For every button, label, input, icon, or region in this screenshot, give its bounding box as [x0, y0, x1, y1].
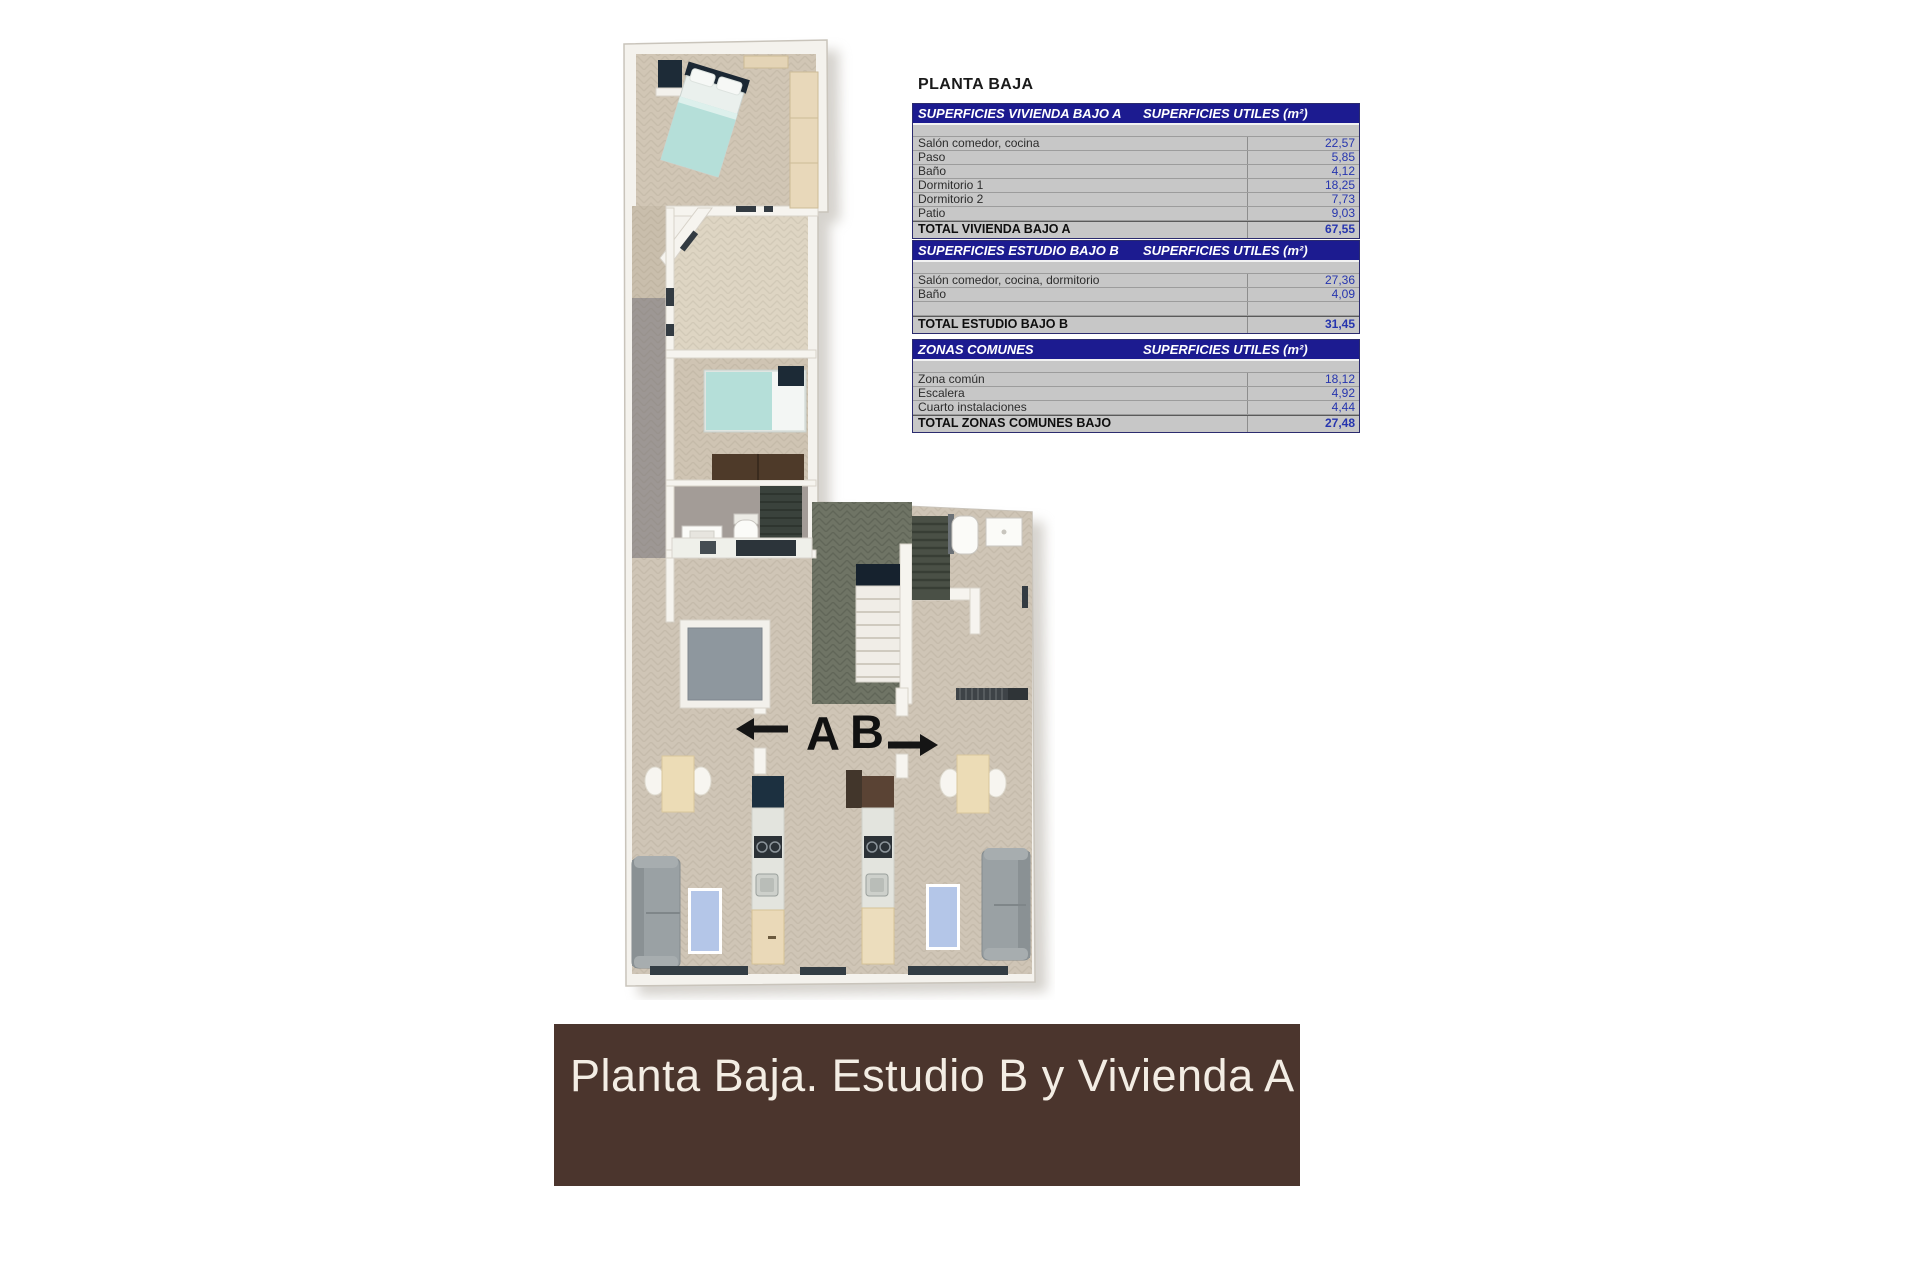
- row-value: 4,09: [1247, 288, 1359, 301]
- shower: [760, 486, 802, 546]
- table-title: ZONAS COMUNES: [918, 342, 1034, 357]
- table-title: SUPERFICIES VIVIENDA BAJO A: [918, 106, 1121, 121]
- caption-banner: Planta Baja. Estudio B y Vivienda A: [554, 1024, 1300, 1186]
- kitchen-island-a: [752, 776, 784, 964]
- row-label: Escalera: [913, 387, 1247, 400]
- page-title: PLANTA BAJA: [918, 76, 1034, 94]
- table-row: Patio 9,03: [913, 207, 1359, 221]
- table-row: Paso 5,85: [913, 151, 1359, 165]
- table-header: SUPERFICIES VIVIENDA BAJO A SUPERFICIES …: [913, 104, 1359, 125]
- table-units-header: SUPERFICIES UTILES (m²): [1143, 342, 1308, 357]
- row-label: Patio: [913, 207, 1247, 220]
- installations-room: [680, 620, 770, 708]
- sofa-a: [632, 856, 680, 968]
- row-value: 18,25: [1247, 179, 1359, 192]
- row-label: Dormitorio 1: [913, 179, 1247, 192]
- single-bed: [704, 366, 806, 432]
- area-table-vivienda-a: SUPERFICIES VIVIENDA BAJO A SUPERFICIES …: [912, 103, 1360, 239]
- table-units-header: SUPERFICIES UTILES (m²): [1143, 106, 1308, 121]
- table-header: ZONAS COMUNES SUPERFICIES UTILES (m²): [913, 340, 1359, 361]
- table-title: SUPERFICIES ESTUDIO BAJO B: [918, 243, 1119, 258]
- total-label: TOTAL VIVIENDA BAJO A: [913, 222, 1247, 238]
- caption-text: Planta Baja. Estudio B y Vivienda A: [570, 1050, 1295, 1102]
- table-units-header: SUPERFICIES UTILES (m²): [1143, 243, 1308, 258]
- page: A B: [0, 0, 1920, 1280]
- total-value: 27,48: [1247, 416, 1359, 432]
- table-header: SUPERFICIES ESTUDIO BAJO B SUPERFICIES U…: [913, 241, 1359, 262]
- kitchen-counter: [672, 538, 812, 558]
- dresser: [712, 454, 804, 480]
- row-label: Baño: [913, 165, 1247, 178]
- row-label: Dormitorio 2: [913, 193, 1247, 206]
- row-label: Baño: [913, 288, 1247, 301]
- row-value: 7,73: [1247, 193, 1359, 206]
- area-table-estudio-b: SUPERFICIES ESTUDIO BAJO B SUPERFICIES U…: [912, 240, 1360, 334]
- rug-b: [926, 884, 960, 950]
- row-label: Salón comedor, cocina: [913, 137, 1247, 150]
- table-row: Baño 4,12: [913, 165, 1359, 179]
- row-value: 4,12: [1247, 165, 1359, 178]
- row-value: 18,12: [1247, 373, 1359, 386]
- radiator: [956, 688, 1028, 700]
- table-row: Dormitorio 2 7,73: [913, 193, 1359, 207]
- toilet-b: [948, 514, 978, 554]
- row-value: 4,44: [1247, 401, 1359, 414]
- staircase: [856, 564, 900, 682]
- total-label: TOTAL ESTUDIO BAJO B: [913, 317, 1247, 333]
- row-value: 5,85: [1247, 151, 1359, 164]
- table-row: Baño 4,09: [913, 288, 1359, 302]
- area-table-zonas-comunes: ZONAS COMUNES SUPERFICIES UTILES (m²) Zo…: [912, 339, 1360, 433]
- total-label: TOTAL ZONAS COMUNES BAJO: [913, 416, 1247, 432]
- table-row: Salón comedor, cocina 22,57: [913, 137, 1359, 151]
- table-total-row: TOTAL ZONAS COMUNES BAJO 27,48: [913, 415, 1359, 432]
- table-row: Cuarto instalaciones 4,44: [913, 401, 1359, 415]
- total-value: 67,55: [1247, 222, 1359, 238]
- table-row: Salón comedor, cocina, dormitorio 27,36: [913, 274, 1359, 288]
- unit-b-label: B: [850, 705, 884, 758]
- total-value: 31,45: [1247, 317, 1359, 333]
- window-sills: [650, 966, 1008, 975]
- row-label: Zona común: [913, 373, 1247, 386]
- sink-b: [986, 518, 1022, 546]
- table-row: Escalera 4,92: [913, 387, 1359, 401]
- table-spacer-row: [913, 125, 1359, 137]
- row-value: 9,03: [1247, 207, 1359, 220]
- table-row: Zona común 18,12: [913, 373, 1359, 387]
- row-label: Cuarto instalaciones: [913, 401, 1247, 414]
- row-label: Paso: [913, 151, 1247, 164]
- table-total-row: TOTAL VIVIENDA BAJO A 67,55: [913, 221, 1359, 238]
- table-spacer-row: [913, 262, 1359, 274]
- table-spacer-row: [913, 361, 1359, 373]
- row-label: [913, 302, 1247, 315]
- unit-a-label: A: [806, 707, 840, 760]
- row-value: 27,36: [1247, 274, 1359, 287]
- table-row: [913, 302, 1359, 316]
- rug-a: [688, 888, 722, 954]
- table-total-row: TOTAL ESTUDIO BAJO B 31,45: [913, 316, 1359, 333]
- table-row: Dormitorio 1 18,25: [913, 179, 1359, 193]
- row-label: Salón comedor, cocina, dormitorio: [913, 274, 1247, 287]
- row-value: [1247, 302, 1359, 315]
- row-value: 22,57: [1247, 137, 1359, 150]
- ramp: [912, 516, 950, 600]
- sofa-b: [982, 848, 1030, 960]
- row-value: 4,92: [1247, 387, 1359, 400]
